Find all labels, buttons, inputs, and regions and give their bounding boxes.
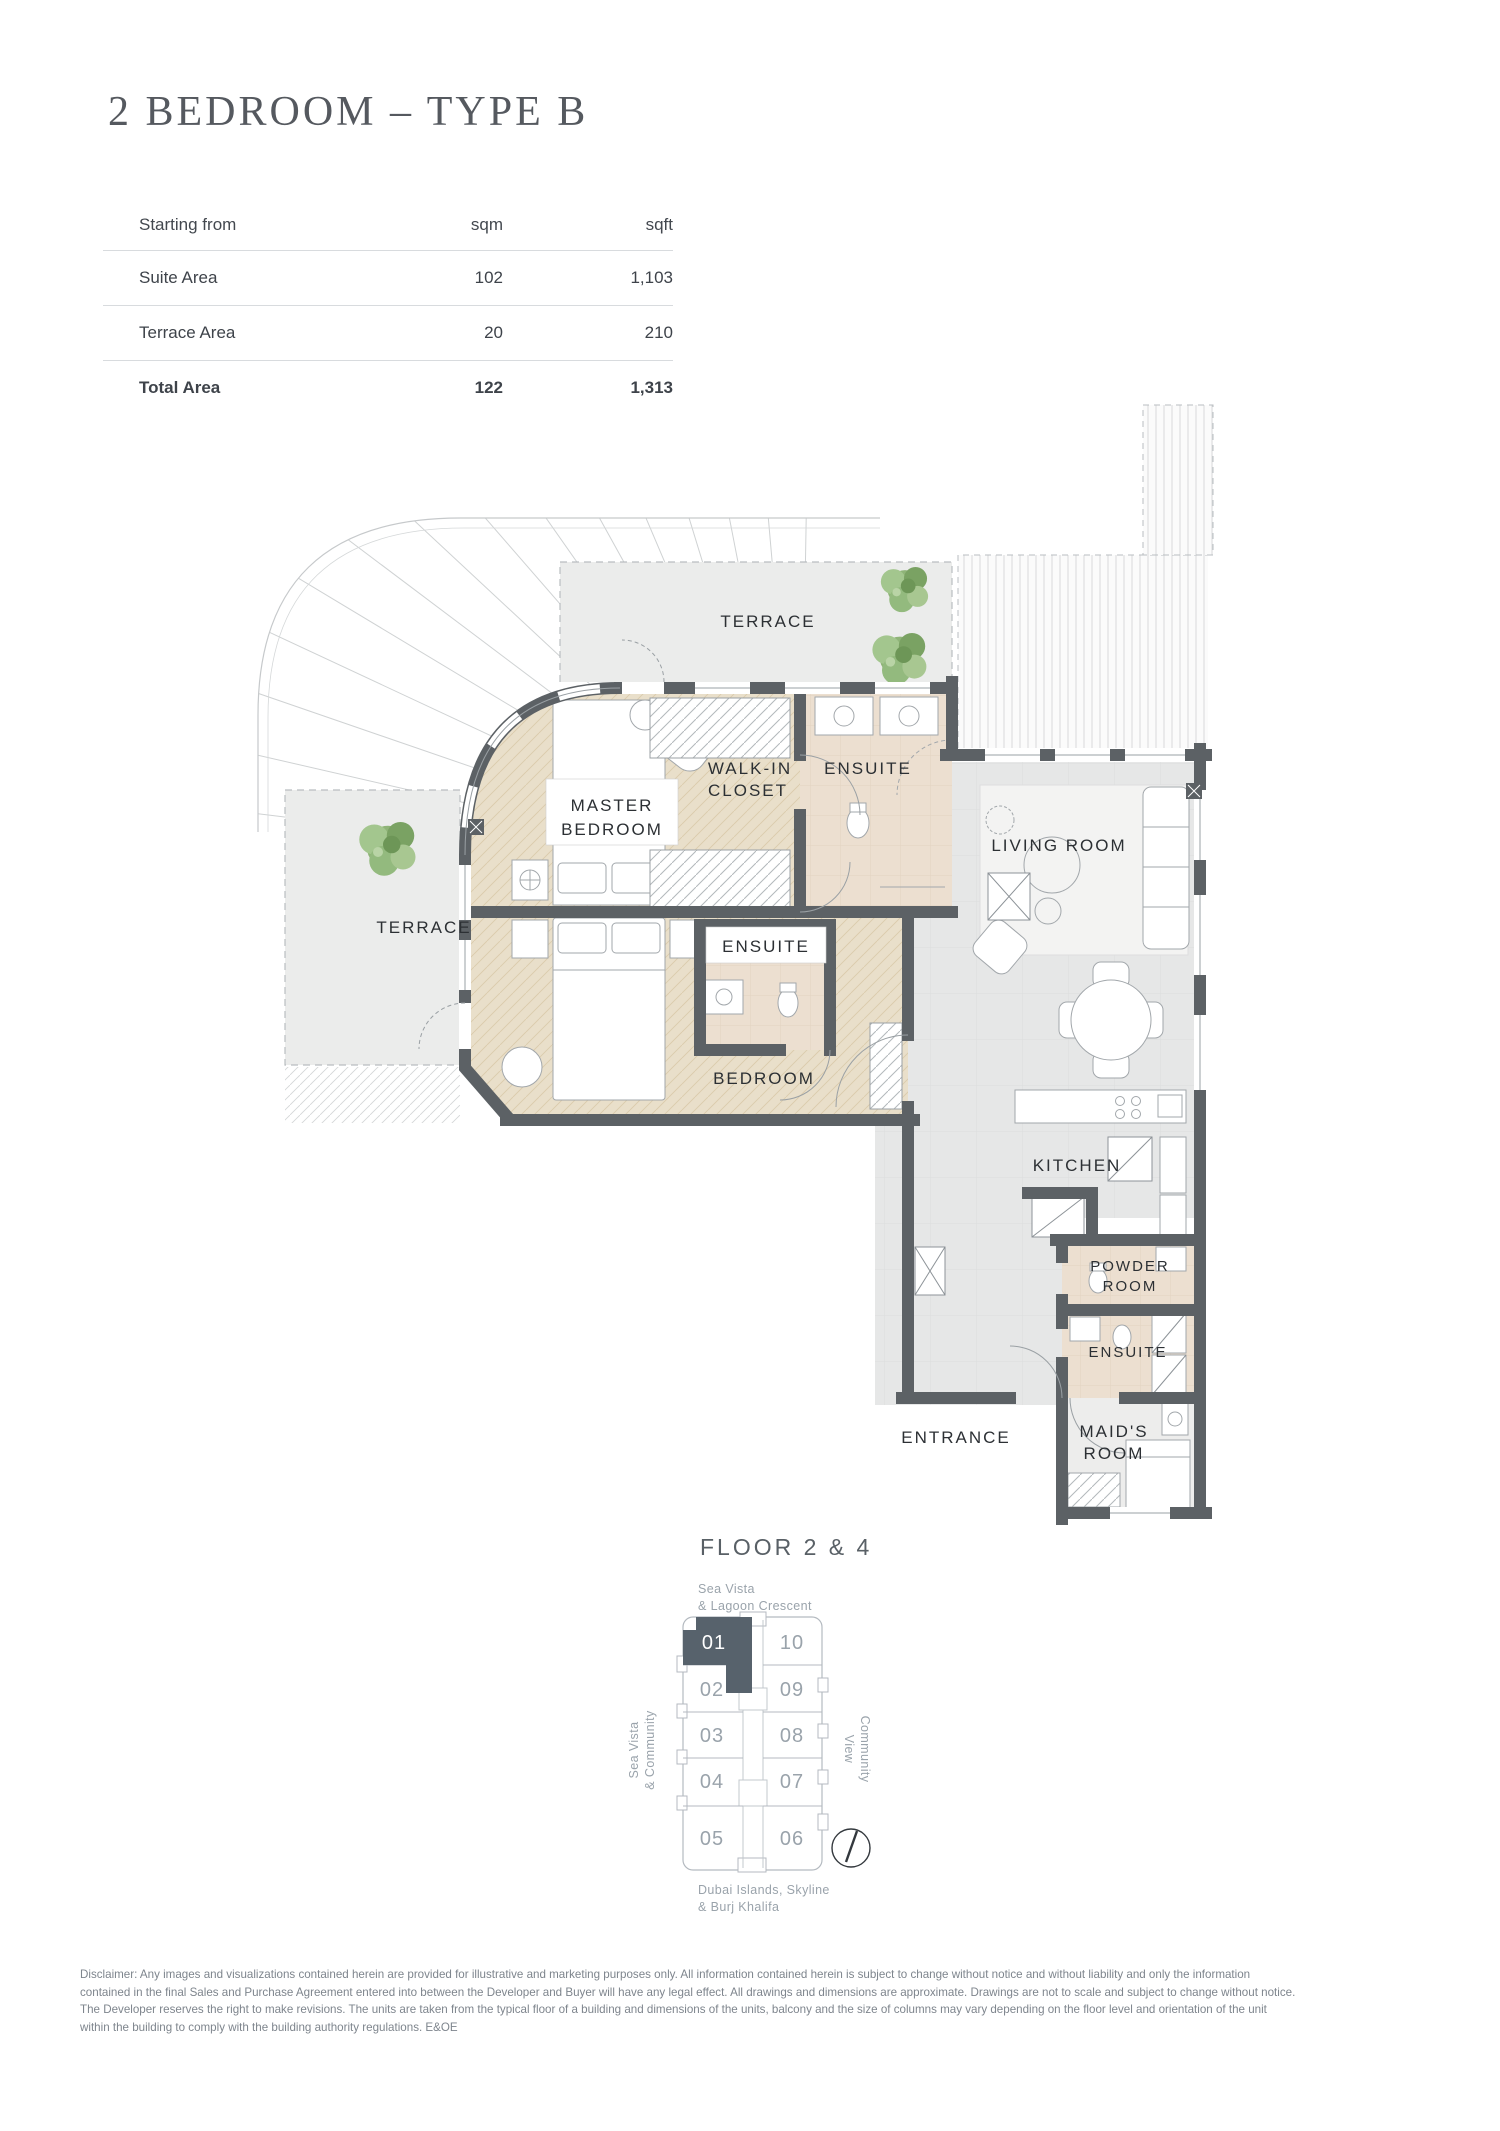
table-row-suite: Suite Area 102 1,103 bbox=[103, 250, 673, 305]
label-powder-1: POWDER bbox=[1090, 1258, 1170, 1275]
floor-plan: TERRACE WALK-IN CLOSET ENSUITE MASTER BE… bbox=[240, 395, 1230, 1545]
wardrobe bbox=[650, 850, 790, 912]
label-master-1: MASTER bbox=[571, 796, 654, 815]
neighbour-terrace bbox=[958, 405, 1213, 748]
label-master-2: BEDROOM bbox=[561, 820, 663, 839]
locator-top-label-2: & Lagoon Crescent bbox=[698, 1599, 812, 1613]
label-entrance: ENTRANCE bbox=[901, 1428, 1011, 1447]
label-walk-in-2: CLOSET bbox=[708, 781, 788, 800]
label-terrace-left: TERRACE bbox=[376, 918, 471, 937]
disclaimer-line: within the building to comply with the b… bbox=[80, 2019, 1480, 2037]
label-living-room: LIVING ROOM bbox=[991, 836, 1126, 855]
label-maid-1: MAID'S bbox=[1079, 1422, 1148, 1441]
disclaimer-line: Disclaimer: Any images and visualization… bbox=[80, 1966, 1480, 1984]
page-title: 2 BEDROOM – TYPE B bbox=[108, 88, 588, 136]
row-sqm: 20 bbox=[353, 323, 503, 343]
disclaimer-text: Disclaimer: Any images and visualization… bbox=[80, 1966, 1480, 2036]
terrace-left bbox=[285, 790, 460, 1123]
area-table: Starting from sqm sqft Suite Area 102 1,… bbox=[103, 198, 673, 415]
locator-left-label-1: Sea Vista bbox=[627, 1722, 641, 1779]
table-row-terrace: Terrace Area 20 210 bbox=[103, 305, 673, 360]
row-label: Terrace Area bbox=[139, 323, 353, 343]
unit-label-04: 04 bbox=[700, 1771, 724, 1793]
unit-label-10: 10 bbox=[780, 1632, 804, 1654]
label-bedroom: BEDROOM bbox=[713, 1069, 815, 1088]
label-ensuite-master: ENSUITE bbox=[824, 759, 912, 778]
area-table-header: Starting from sqm sqft bbox=[103, 198, 673, 250]
row-sqm: 102 bbox=[353, 268, 503, 288]
row-label: Suite Area bbox=[139, 268, 353, 288]
locator-bottom-label-2: & Burj Khalifa bbox=[698, 1900, 779, 1914]
unit-label-06: 06 bbox=[780, 1828, 804, 1850]
wardrobe bbox=[650, 698, 790, 758]
locator-right-label-1: Community bbox=[858, 1716, 872, 1783]
unit-label-02: 02 bbox=[700, 1679, 724, 1701]
header-label: Starting from bbox=[139, 215, 353, 235]
disclaimer-line: The Developer reserves the right to make… bbox=[80, 2001, 1480, 2019]
unit-label-05: 05 bbox=[700, 1828, 724, 1850]
label-powder-2: ROOM bbox=[1103, 1278, 1158, 1295]
label-terrace-top: TERRACE bbox=[720, 612, 815, 631]
label-kitchen: KITCHEN bbox=[1033, 1156, 1122, 1175]
unit-label-03: 03 bbox=[700, 1725, 724, 1747]
locator-bottom-label-1: Dubai Islands, Skyline bbox=[698, 1883, 830, 1897]
row-sqft: 1,103 bbox=[503, 268, 673, 288]
locator-title: FLOOR 2 & 4 bbox=[700, 1534, 872, 1560]
label-walk-in-1: WALK-IN bbox=[708, 759, 792, 778]
unit-label-08: 08 bbox=[780, 1725, 804, 1747]
unit-label-07: 07 bbox=[780, 1771, 804, 1793]
header-sqft: sqft bbox=[503, 215, 673, 235]
unit-label-09: 09 bbox=[780, 1679, 804, 1701]
compass-icon bbox=[832, 1829, 870, 1867]
label-ensuite-bedroom: ENSUITE bbox=[722, 937, 810, 956]
locator-left-label-2: & Community bbox=[643, 1710, 657, 1790]
locator-top-label-1: Sea Vista bbox=[698, 1582, 755, 1596]
label-ensuite-maid: ENSUITE bbox=[1088, 1344, 1167, 1361]
locator-right-label-2: View bbox=[842, 1735, 856, 1764]
label-maid-2: ROOM bbox=[1084, 1444, 1145, 1463]
disclaimer-line: contained in the final Sales and Purchas… bbox=[80, 1984, 1480, 2002]
unit-label-01: 01 bbox=[702, 1632, 726, 1654]
header-sqm: sqm bbox=[353, 215, 503, 235]
floor-locator: FLOOR 2 & 4 Sea Vista & Lagoon Crescent … bbox=[600, 1528, 930, 1958]
row-sqft: 210 bbox=[503, 323, 673, 343]
